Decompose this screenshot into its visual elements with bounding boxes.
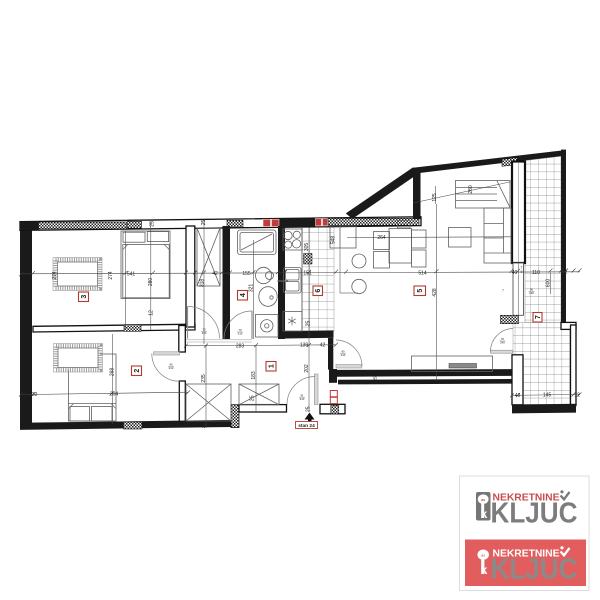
- svg-text:12: 12: [562, 270, 568, 276]
- svg-text:k: k: [481, 563, 488, 577]
- svg-text:KLJUC: KLJUC: [491, 498, 578, 530]
- svg-text:5: 5: [417, 289, 424, 293]
- svg-text:4: 4: [240, 293, 247, 297]
- svg-text:7: 7: [502, 289, 504, 293]
- svg-text:110: 110: [532, 270, 540, 276]
- svg-text:145: 145: [543, 393, 552, 399]
- svg-text:264: 264: [377, 235, 386, 241]
- svg-text:428: 428: [432, 288, 438, 297]
- svg-text:3: 3: [81, 295, 88, 299]
- svg-text:321: 321: [249, 284, 255, 293]
- svg-text:25: 25: [306, 406, 312, 412]
- svg-text:stan 24: stan 24: [298, 423, 315, 429]
- svg-text:as: as: [481, 553, 485, 557]
- svg-text:283: 283: [236, 343, 245, 349]
- svg-text:40: 40: [22, 272, 28, 278]
- svg-text:KLJUC: KLJUC: [491, 554, 578, 586]
- svg-text:125: 125: [432, 193, 438, 202]
- svg-text:318: 318: [200, 279, 206, 288]
- svg-text:25: 25: [201, 220, 207, 226]
- svg-text:274: 274: [108, 271, 114, 280]
- svg-text:268: 268: [110, 368, 116, 377]
- svg-text:25: 25: [306, 321, 312, 327]
- svg-text:12: 12: [149, 310, 155, 316]
- svg-text:25: 25: [373, 376, 378, 381]
- svg-text:2: 2: [134, 369, 141, 373]
- svg-text:k: k: [481, 507, 488, 521]
- svg-text:514: 514: [418, 270, 427, 276]
- svg-text:as: as: [481, 498, 485, 502]
- svg-text:25: 25: [250, 395, 256, 401]
- svg-text:274: 274: [52, 271, 58, 280]
- svg-text:1: 1: [269, 364, 276, 368]
- svg-text:541: 541: [127, 271, 136, 277]
- svg-text:151: 151: [303, 271, 312, 277]
- svg-text:548: 548: [331, 236, 337, 245]
- svg-text:25: 25: [150, 221, 156, 227]
- svg-text:7: 7: [521, 266, 523, 270]
- svg-text:40: 40: [22, 392, 28, 398]
- svg-text:12: 12: [574, 393, 580, 399]
- svg-text:305: 305: [304, 243, 310, 252]
- svg-text:6: 6: [315, 289, 322, 293]
- svg-text:25: 25: [201, 423, 206, 428]
- svg-text:42: 42: [212, 271, 218, 277]
- svg-text:280: 280: [468, 185, 474, 194]
- svg-text:183: 183: [251, 371, 257, 380]
- svg-text:280: 280: [148, 278, 154, 287]
- svg-text:155: 155: [242, 271, 251, 277]
- svg-text:235: 235: [201, 374, 207, 383]
- svg-text:304: 304: [110, 391, 119, 397]
- svg-text:42: 42: [320, 343, 326, 349]
- svg-text:40: 40: [512, 270, 518, 276]
- svg-text:600: 600: [546, 279, 552, 288]
- svg-text:202: 202: [304, 364, 310, 373]
- svg-text:30: 30: [32, 392, 38, 398]
- svg-text:7: 7: [535, 315, 542, 319]
- svg-text:139: 139: [300, 343, 309, 349]
- svg-text:40: 40: [515, 393, 521, 399]
